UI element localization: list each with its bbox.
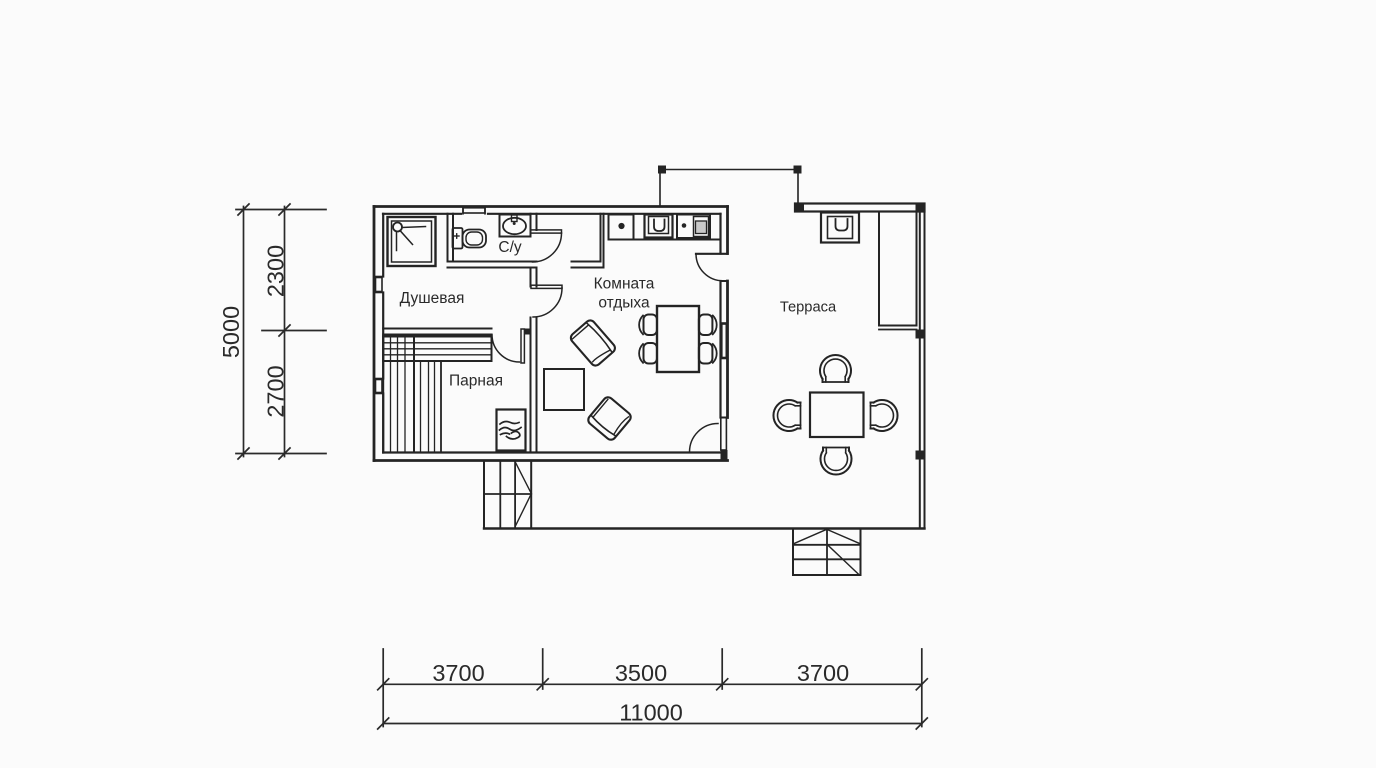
svg-text:Терраса: Терраса <box>780 300 837 316</box>
svg-text:С/у: С/у <box>498 239 522 256</box>
svg-text:3500: 3500 <box>615 660 667 686</box>
svg-text:отдыха: отдыха <box>598 295 650 312</box>
svg-text:Душевая: Душевая <box>400 290 465 307</box>
svg-text:3700: 3700 <box>797 660 849 686</box>
svg-text:Комната: Комната <box>594 276 655 293</box>
svg-text:Парная: Парная <box>449 373 503 390</box>
svg-text:11000: 11000 <box>619 700 683 726</box>
svg-text:2300: 2300 <box>263 245 289 297</box>
svg-text:3700: 3700 <box>432 660 484 686</box>
svg-text:5000: 5000 <box>218 306 244 358</box>
svg-text:2700: 2700 <box>263 365 289 417</box>
